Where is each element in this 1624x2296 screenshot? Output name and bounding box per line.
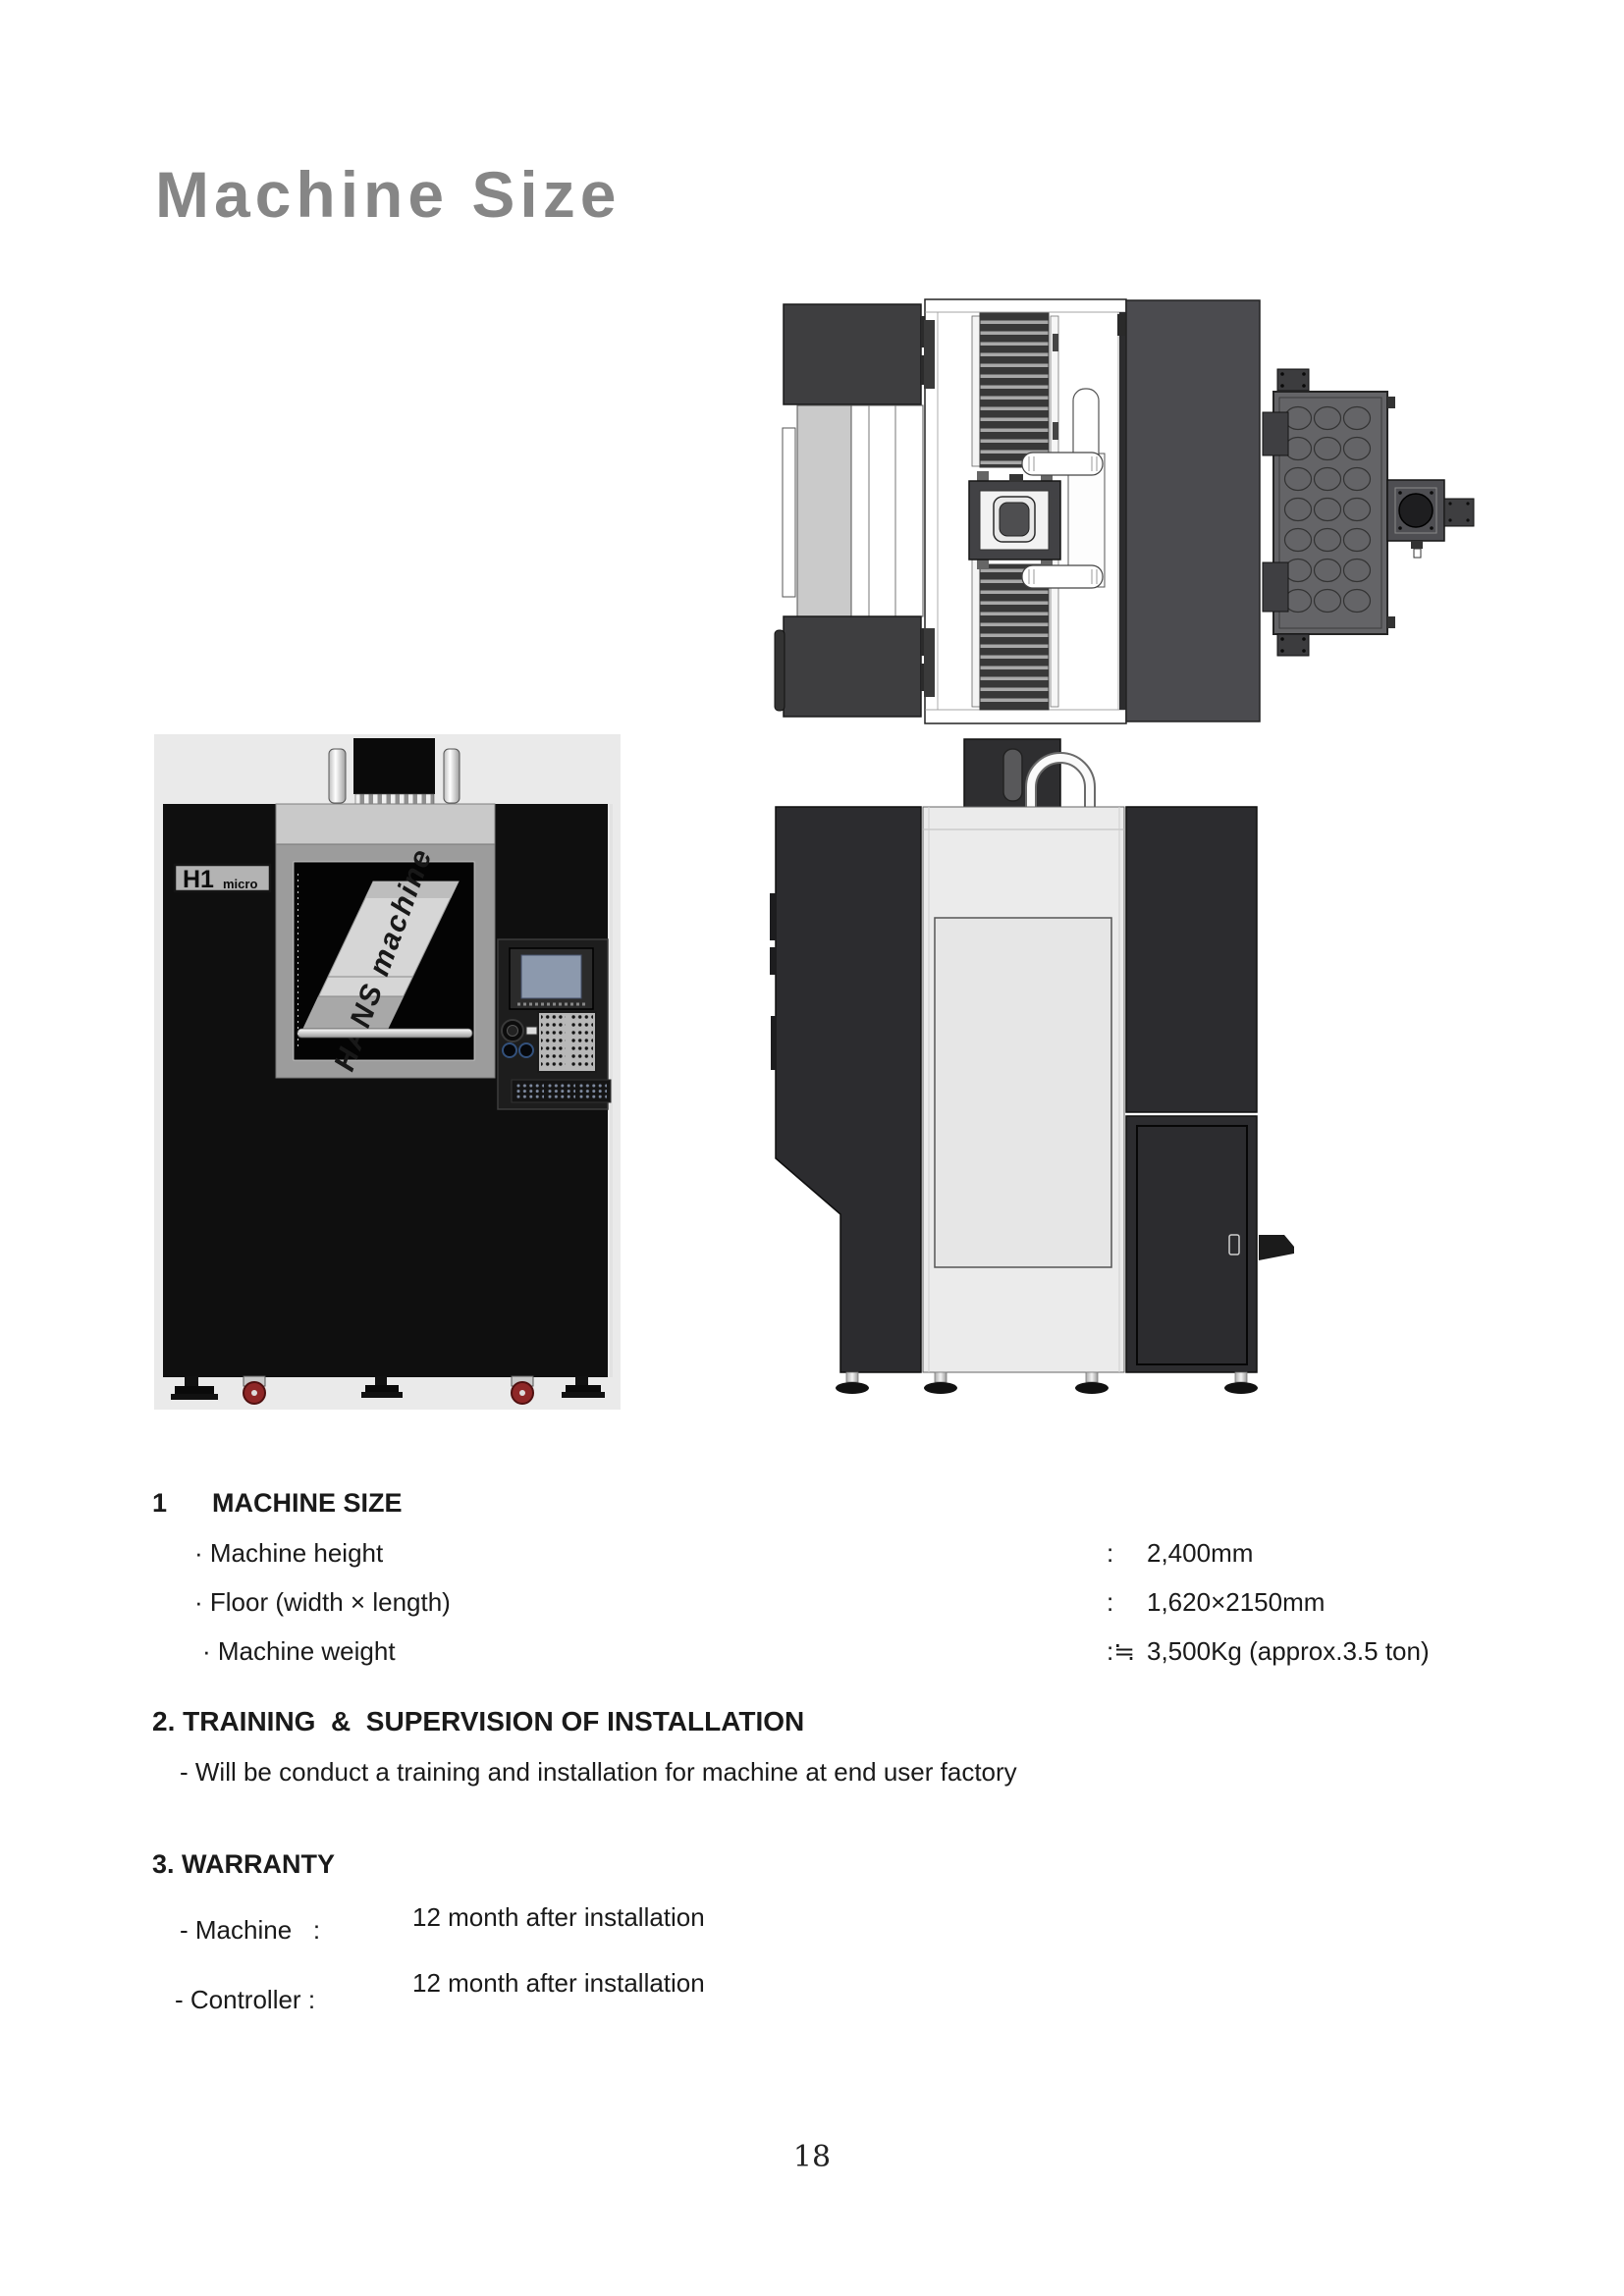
- section-2-heading: 2. TRAINING & SUPERVISION OF INSTALLATIO…: [152, 1706, 804, 1737]
- spec-value: 3,500Kg (approx.3.5 ton): [1147, 1636, 1430, 1667]
- side-right-upper: [1126, 807, 1257, 1112]
- top-view-center-frame: [924, 299, 1126, 723]
- machine-front-view-photo: HANS machine H1 micro: [154, 734, 621, 1410]
- spec-value: 1,620×2150mm: [1147, 1587, 1325, 1618]
- section-2-body: - Will be conduct a training and install…: [180, 1757, 1017, 1788]
- control-screen: [521, 955, 581, 998]
- side-center-column: [923, 807, 1124, 1372]
- model-badge: H1 micro: [175, 865, 270, 893]
- section-1-number: 1: [152, 1488, 212, 1519]
- side-bracket: [1259, 1235, 1294, 1260]
- side-left-slab: [776, 807, 921, 1372]
- section-3-heading: 3. WARRANTY: [152, 1849, 335, 1880]
- top-view-left-assembly: [775, 304, 933, 717]
- warranty-machine-label: - Machine :: [180, 1915, 320, 1946]
- spec-colon: :: [1107, 1587, 1113, 1618]
- connector-port: [503, 1043, 516, 1057]
- control-panel: [498, 939, 611, 1109]
- pallet-holes: [1285, 407, 1371, 613]
- side-door-panel: [935, 918, 1111, 1267]
- spec-colon: :≒: [1107, 1636, 1135, 1667]
- page-title: Machine Size: [155, 157, 621, 232]
- warranty-controller-value: 12 month after installation: [412, 1968, 705, 1999]
- spec-row-machine-weight: · Machine weight :≒ 3,500Kg (approx.3.5 …: [0, 1636, 1624, 1670]
- spec-row-machine-height: · Machine height : 2,400mm: [0, 1538, 1624, 1572]
- section-1-heading: 1 MACHINE SIZE: [152, 1488, 403, 1519]
- section-1-title: MACHINE SIZE: [212, 1488, 403, 1519]
- machine-side-view-photo: [766, 731, 1301, 1418]
- machine-cap: [276, 804, 495, 844]
- side-right-lower: [1126, 1116, 1257, 1372]
- top-view-right-slab: [1117, 300, 1260, 721]
- spec-value: 2,400mm: [1147, 1538, 1253, 1569]
- rotary-unit: [1387, 480, 1474, 558]
- spec-label: · Machine weight: [202, 1636, 396, 1667]
- warranty-machine-value: 12 month after installation: [412, 1902, 705, 1933]
- spec-colon: :: [1107, 1538, 1113, 1569]
- center-fixture: [969, 471, 1060, 569]
- document-page: Machine Size: [0, 0, 1624, 2296]
- model-badge-sub: micro: [223, 877, 257, 891]
- machine-top-view-drawing: [766, 294, 1483, 731]
- warranty-controller-label: - Controller :: [175, 1985, 315, 2015]
- side-feet: [836, 1372, 1258, 1394]
- model-badge-main: H1: [183, 866, 214, 893]
- pallet-assembly: [1263, 369, 1395, 656]
- page-number: 18: [0, 2140, 1624, 2174]
- spec-label: · Floor (width × length): [194, 1587, 451, 1618]
- spec-label: · Machine height: [194, 1538, 383, 1569]
- window-chrome-bar: [298, 1029, 472, 1038]
- connector-port: [519, 1043, 533, 1057]
- spec-row-floor-size: · Floor (width × length) : 1,620×2150mm: [0, 1587, 1624, 1621]
